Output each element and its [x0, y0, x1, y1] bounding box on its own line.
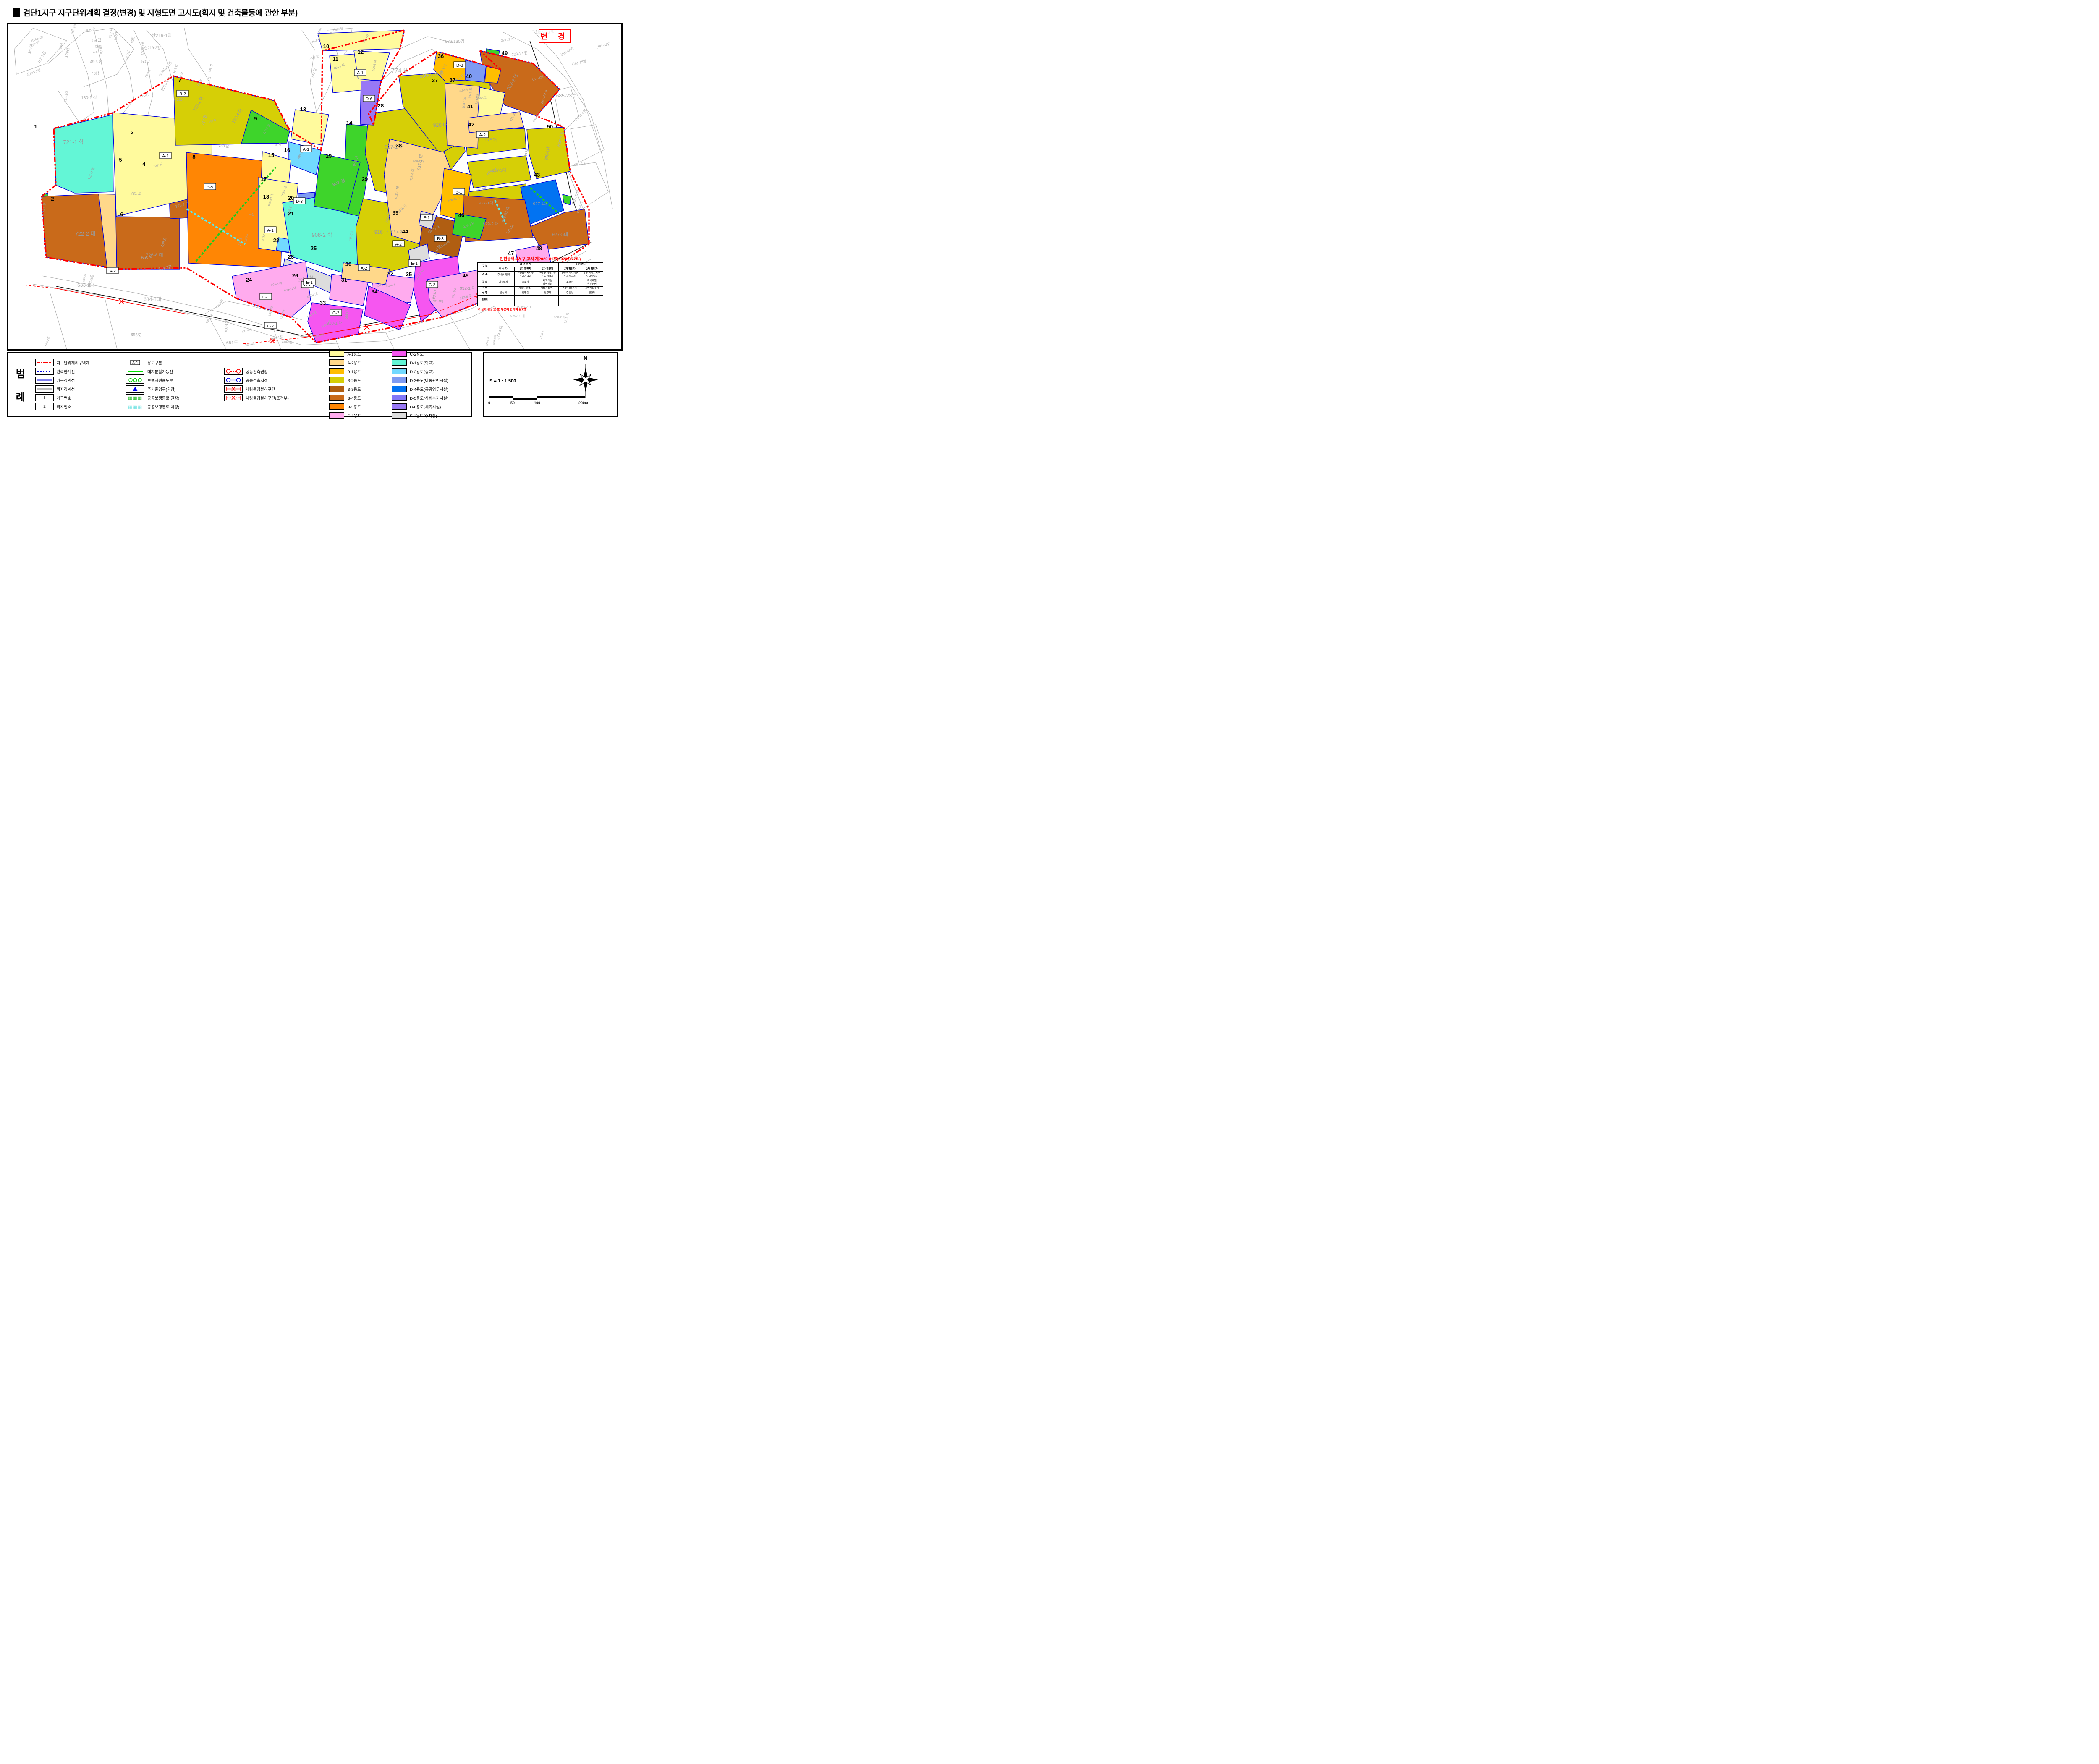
block-number: 24 [246, 277, 252, 283]
outside-parcel-label: 128대 [59, 43, 63, 51]
legend-item-usecode: A-1용도구분 [126, 359, 224, 366]
use-code-tag: B-3 [437, 237, 444, 241]
legend-label: 공공보행통로(권장) [147, 395, 179, 401]
block-number: 10 [323, 43, 329, 50]
legend-label: 획지번호 [57, 404, 71, 410]
block-number: 26 [292, 272, 298, 279]
block-number: 12 [358, 49, 364, 55]
block-number: 20 [288, 195, 294, 201]
road-label: 1049도 [523, 147, 529, 158]
cadastral-line [58, 28, 94, 123]
use-code-tag: E-1 [411, 262, 418, 266]
outside-parcel-label: 745-5 임 [310, 38, 321, 45]
use-code-tag: B-5 [207, 185, 213, 190]
parcel-label: 932-1 대 [460, 286, 476, 291]
zone-polygon-D1 [54, 115, 113, 193]
use-code-tag: D-3 [296, 199, 303, 204]
road-label: 651도 [226, 340, 238, 345]
block-number: 29 [362, 176, 368, 182]
legend-label: 용도구분 [147, 360, 162, 366]
use-code-tag: A-2 [479, 133, 486, 138]
legend-item-D3: D-3용도(아동관련시설) [392, 377, 471, 384]
cadastral-line [449, 314, 470, 349]
block-number: 22 [273, 237, 279, 243]
block-number: 44 [402, 228, 408, 235]
legend-col-zones1: A-1용도A-2용도B-1용도B-2용도B-3용도B-4용도B-5용도C-1용도 [329, 350, 392, 419]
zone-polygon-A2 [445, 83, 480, 148]
svg-text:1: 1 [43, 396, 46, 400]
outside-parcel-label: 130-1 장 [81, 95, 97, 100]
block-number: 46 [458, 212, 464, 218]
scale-panel: N S = 1 : 1,500 0 50 100 [483, 352, 618, 417]
outside-parcel-label: 1119 도 [563, 312, 570, 324]
legend-label: 대지분할가능선 [147, 369, 173, 374]
cadastral-line [105, 297, 117, 349]
block-number: 21 [288, 210, 294, 217]
zone-polygon-GRN [563, 194, 571, 205]
outside-parcel-label: 52전 [130, 36, 136, 44]
legend-symbol-jointdes-icon [224, 377, 243, 384]
block-number: 43 [534, 172, 540, 178]
legend-swatch-D3 [392, 377, 407, 383]
outside-parcel-label: 산219-1임 [152, 33, 172, 38]
legend-symbol-usecode-icon: A-1 [126, 359, 144, 366]
legend-label: 공동건축지정 [246, 377, 267, 383]
legend-label: 지구단위계획구역계 [57, 360, 90, 366]
legend-item-pedroad: 보행자전용도로 [126, 377, 224, 384]
outside-parcel-label: 산223임 [174, 97, 186, 102]
block-number: 27 [432, 77, 438, 84]
outside-parcel-label: 223-17 임 [511, 50, 528, 57]
legend-label: D-6용도(체육시설) [410, 404, 441, 410]
scale-bar: 0 50 100 200m [489, 396, 585, 406]
legend-item-jointdes: 공동건축지정 [224, 377, 329, 384]
legend-label: B-2용도 [347, 377, 361, 383]
use-code-tag: B-1 [455, 190, 462, 195]
use-code-tag: A-2 [109, 269, 116, 274]
legend-swatch-B4 [329, 395, 344, 401]
legend-label: 가구번호 [57, 395, 71, 401]
outside-parcel-label: 50-4임 [144, 69, 152, 78]
legend-label: 획지경계선 [57, 386, 75, 392]
block-number: 13 [300, 106, 306, 113]
outside-parcel-label: 979-3 대 [492, 335, 497, 345]
legend-label: 차량출입불허구간 [246, 386, 275, 392]
parcel-label: 931-1대 [433, 300, 443, 303]
legend-item-noveh: 차량출입불허구간 [224, 385, 329, 393]
legend-label: C-2용도 [410, 351, 424, 357]
outside-parcel-label: 산101-1임 [574, 108, 587, 122]
legend-swatch-B5 [329, 403, 344, 410]
block-number: 5 [119, 157, 122, 163]
legend-item-novehcond: 차량출입불허구간(조건부) [224, 394, 329, 401]
page: 검단1지구 지구단위계획 결정(변경) 및 지형도면 고시도(획지 및 건축물등… [0, 0, 624, 444]
legend-swatch-D4 [392, 386, 407, 392]
legend-col-lines2: A-1용도구분대지분할가능선보행자전용도로주차출입구(권장)▦▦▦공공보행통로(… [126, 359, 224, 410]
legend-item-lotnum: ①획지번호 [35, 403, 126, 410]
notice-footnote: ※ 금회 결정(변경) 부분에 한하여 유효함. [477, 307, 603, 311]
outside-parcel-label: 979-11 대 [510, 314, 525, 318]
legend-swatch-A2 [329, 359, 344, 366]
block-number: 25 [311, 245, 317, 251]
use-code-tag: A-2 [395, 242, 402, 247]
legend-heading: 범 례 [8, 361, 34, 408]
cadastral-line [50, 293, 67, 349]
legend-col-zones2: C-2용도D-1용도(학교)D-2용도(종교)D-3용도(아동관련시설)D-4용… [392, 350, 471, 419]
svg-text:▦▦▦: ▦▦▦ [128, 396, 142, 400]
legend-symbol-lotline-icon [35, 385, 54, 393]
approval-table: 구 분입 안 권 자결 정 권 자작 성 자1차 확인자2차 확인자1차 확인자… [477, 262, 603, 306]
outside-parcel-label: 산220-1임 [140, 42, 145, 55]
legend-item-splitline: 대지분할가능선 [126, 368, 224, 375]
outside-parcel-label: 55-6 전 [84, 26, 96, 33]
use-code-tag: E-1 [423, 216, 430, 220]
outside-parcel-label: 38-2 잡 [172, 64, 178, 74]
legend-item-pubwalk1: ▦▦▦공공보행통로(권장) [126, 394, 224, 401]
legend-label: A-1용도 [347, 351, 361, 357]
outside-parcel-label: 50답 [141, 59, 150, 64]
cadastral-line [386, 332, 394, 349]
outside-parcel-label: 49-1답 [93, 50, 103, 54]
use-code-tag: C-2 [267, 324, 274, 329]
cadastral-line [48, 28, 134, 87]
legend: 범 례 지구단위계획구역계건축한계선가구경계선획지경계선1가구번호①획지번호 A… [7, 352, 472, 417]
x-mark [364, 325, 369, 330]
legend-item-blocknum: 1가구번호 [35, 394, 126, 401]
legend-symbol-bldgline-icon [35, 368, 54, 375]
outside-parcel-label: 685-2 임 [574, 161, 587, 167]
legend-item-D2: D-2용도(종교) [392, 368, 471, 375]
legend-label: D-3용도(아동관련시설) [410, 377, 448, 383]
legend-item-B5: B-5용도 [329, 403, 392, 410]
outside-parcel-label: 산91-14임 [560, 46, 574, 57]
legend-col-lines1: 지구단위계획구역계건축한계선가구경계선획지경계선1가구번호①획지번호 [35, 359, 126, 410]
legend-label: D-4용도(공공업무시설) [410, 386, 448, 392]
legend-label: B-1용도 [347, 369, 361, 374]
outside-parcel-label: 980-7 대 [554, 316, 565, 319]
legend-item-A1: A-1용도 [329, 350, 392, 357]
legend-label: B-3용도 [347, 386, 361, 392]
legend-item-B4: B-4용도 [329, 394, 392, 401]
legend-item-pubwalk2: ▦▦▦공공보행통로(지정) [126, 403, 224, 410]
cadastral-line [14, 28, 67, 74]
legend-label: 보행자전용도로 [147, 377, 173, 383]
legend-item-C1: C-1용도 [329, 412, 392, 419]
outside-parcel-label: 649-2종 [44, 336, 51, 347]
block-number: 18 [263, 194, 269, 200]
use-code-tag: A-2 [361, 266, 367, 271]
block-number: 39 [393, 209, 398, 216]
legend-swatch-B3 [329, 386, 344, 392]
legend-item-C2: C-2용도 [392, 350, 471, 357]
legend-item-D5: D-5용도(사회복지시설) [392, 394, 471, 401]
use-code-tag: C-1 [262, 295, 270, 300]
block-number: 9 [254, 115, 257, 122]
block-number: 1 [34, 123, 37, 130]
legend-label: B-4용도 [347, 395, 361, 401]
block-number: 11 [332, 56, 338, 62]
notice-title: - 인천광역시서구 고시 제2020-81호(2020.05.25.) - [477, 256, 603, 262]
title-bar: 검단1지구 지구단위계획 결정(변경) 및 지형도면 고시도(획지 및 건축물등… [13, 7, 298, 18]
outside-parcel-label: 774 임 [391, 67, 409, 74]
no-vehicle-access-line [56, 288, 188, 314]
legend-item-E1: E-1용도(주차장) [392, 412, 471, 419]
legend-item-B1: B-1용도 [329, 368, 392, 375]
bottom-row: 범 례 지구단위계획구역계건축한계선가구경계선획지경계선1가구번호①획지번호 A… [7, 352, 618, 417]
legend-label: D-2용도(종교) [410, 369, 434, 374]
legend-col-lines3: 공동건축권장공동건축지정차량출입불허구간차량출입불허구간(조건부) [224, 368, 329, 401]
legend-heading-char2: 례 [16, 389, 25, 403]
svg-text:▦▦▦: ▦▦▦ [128, 405, 142, 409]
legend-item-A2: A-2용도 [329, 359, 392, 366]
use-code-tag: D-6 [366, 97, 373, 102]
outside-parcel-label: 634-1대 [144, 296, 161, 302]
outside-parcel-label: 48답 [92, 71, 99, 76]
block-number: 16 [284, 147, 290, 153]
outside-parcel-label: 685-23수 [556, 93, 576, 99]
legend-label: E-1용도(주차장) [410, 413, 437, 419]
map-frame: 산219-1임산219-2임54답53답49-1답49-3 전48답50답50-… [7, 23, 623, 351]
block-number: 8 [192, 154, 195, 160]
block-number: 15 [268, 152, 274, 158]
block-number: 31 [341, 277, 347, 283]
block-number: 23 [288, 254, 294, 260]
notice-panel: - 인천광역시서구 고시 제2020-81호(2020.05.25.) - 구 … [477, 256, 603, 311]
use-code-tag: C-2 [429, 283, 436, 288]
block-number: 34 [372, 288, 378, 295]
parcel-label: 920 대 [433, 122, 448, 128]
block-number: 14 [346, 120, 353, 126]
parcel-label: 908-2 학 [312, 232, 332, 238]
north-label: N [571, 355, 600, 361]
legend-item-bldgline: 건축한계선 [35, 368, 126, 375]
legend-symbol-blocknum-icon: 1 [35, 394, 54, 401]
legend-item-B2: B-2용도 [329, 377, 392, 384]
outside-parcel-label: 638-6공 [282, 341, 293, 344]
block-number: 49 [502, 50, 508, 56]
legend-item-D4: D-4용도(공공업무시설) [392, 385, 471, 393]
use-code-tag: C-2 [332, 311, 340, 316]
scale-ratio: S = 1 : 1,500 [489, 379, 516, 384]
north-indicator: N [571, 355, 600, 402]
outside-parcel-label: 686-130임 [445, 39, 464, 44]
use-code-tag: B-2 [179, 92, 186, 97]
outside-parcel-label: 산220임 [332, 26, 343, 32]
legend-item-jointrec: 공동건축권장 [224, 368, 329, 375]
use-code-tag: A-1 [303, 147, 309, 152]
block-number: 28 [378, 102, 384, 109]
block-number: 32 [387, 270, 393, 277]
block-number: 41 [467, 103, 473, 110]
use-code-tag: A-1 [357, 71, 364, 76]
parcel-label: 927-4대 [533, 202, 548, 207]
scale-ticks: 0 50 100 200m [489, 400, 585, 406]
legend-label: 공동건축권장 [246, 369, 267, 374]
parcel-label: 722-2 대 [75, 230, 96, 237]
legend-label: 건축한계선 [57, 369, 75, 374]
block-number: 33 [320, 300, 326, 306]
parcel-label: 916 대 [374, 229, 389, 235]
outside-parcel-label: 748 잡 [208, 63, 214, 73]
parcel-label: 721-1 학 [63, 139, 84, 145]
legend-symbol-lotnum-icon: ① [35, 403, 54, 410]
use-code-tag: E-1 [306, 280, 313, 285]
legend-swatch-C2 [392, 351, 407, 357]
legend-label: B-5용도 [347, 404, 361, 410]
outside-parcel-label: 979-4 대 [496, 325, 503, 340]
legend-item-blockline: 가구경계선 [35, 377, 126, 384]
block-number: 17 [261, 176, 267, 182]
legend-item-D6: D-6용도(체육시설) [392, 403, 471, 410]
parcel-label: 925대 [485, 137, 497, 143]
legend-item-boundary: 지구단위계획구역계 [35, 359, 126, 366]
legend-symbol-pubwalk2-icon: ▦▦▦ [126, 403, 144, 410]
legend-symbol-boundary-icon [35, 359, 54, 366]
legend-swatch-C1 [329, 412, 344, 419]
block-number: 40 [466, 73, 472, 79]
outside-parcel-label: 50-2임 [159, 68, 166, 77]
legend-symbol-novehcond-icon [224, 394, 243, 401]
block-number: 35 [406, 271, 412, 277]
parcel-label: 927-1대 [479, 201, 494, 206]
block-number: 19 [326, 153, 332, 159]
road-label: 656도 [131, 332, 141, 338]
legend-item-D1: D-1용도(학교) [392, 359, 471, 366]
block-number: 4 [142, 161, 146, 167]
outside-parcel-label: 223-17 임 [501, 37, 514, 42]
outside-parcel-label: 635-2대 [215, 299, 224, 309]
outside-parcel-label: 49-3 전 [90, 60, 102, 64]
outside-parcel-label: 산91-15임 [571, 59, 587, 67]
legend-swatch-D2 [392, 368, 407, 374]
use-code-tag: A-1 [267, 228, 274, 233]
legend-swatch-B1 [329, 368, 344, 374]
legend-symbol-blockline-icon [35, 377, 54, 384]
legend-symbol-splitline-icon [126, 368, 144, 375]
outside-parcel-label: 637-1대 [224, 320, 229, 332]
legend-swatch-A1 [329, 351, 344, 357]
outside-parcel-label: 129-1대 [63, 90, 69, 102]
outside-parcel-label: 산219-2임 [144, 45, 161, 50]
legend-label: 가구경계선 [57, 377, 75, 383]
outside-parcel-label: 1118 도 [539, 329, 545, 340]
road-label: 731 도 [131, 191, 141, 196]
legend-item-lotline: 획지경계선 [35, 385, 126, 393]
parcel-label: 910-1 대 [327, 321, 343, 326]
legend-swatch-D6 [392, 403, 407, 410]
legend-symbol-jointrec-icon [224, 368, 243, 375]
legend-label: 차량출입불허구간(조건부) [246, 395, 288, 401]
block-number: 6 [120, 211, 123, 217]
parcel-label: 915-4 대 [390, 230, 403, 234]
block-number: 50 [547, 123, 553, 130]
outside-parcel-label: 155-7장 [37, 50, 47, 64]
outside-parcel-label: 633-3도 [82, 272, 87, 282]
legend-swatch-E1 [392, 412, 407, 419]
svg-text:A-1: A-1 [132, 361, 138, 365]
change-stamp: 변 경 [540, 32, 569, 41]
block-number: 3 [131, 129, 133, 136]
legend-label: D-1용도(학교) [410, 360, 434, 366]
use-code-tag: D-3 [456, 63, 463, 68]
legend-label: 주차출입구(권장) [147, 386, 176, 392]
block-number: 48 [536, 245, 542, 251]
outside-parcel-label: 54답 [92, 38, 102, 43]
block-number: 7 [178, 77, 181, 84]
outside-parcel-label: 747 잡 [310, 68, 317, 79]
road-label: 곡전 [249, 212, 254, 216]
outside-parcel-label: 129전 [64, 47, 70, 58]
cadastral-line [113, 32, 134, 120]
legend-item-parkentry: 주차출입구(권장) [126, 385, 224, 393]
cadastral-line [209, 318, 226, 349]
block-number: 30 [345, 261, 351, 267]
outside-parcel-label: 52-3전 [125, 50, 131, 60]
legend-symbol-pedroad-icon [126, 377, 144, 384]
legend-label: D-5용도(사회복지시설) [410, 395, 448, 401]
outside-parcel-label: 산91-35임 [596, 42, 611, 50]
legend-swatch-D1 [392, 359, 407, 366]
block-number: 37 [450, 77, 455, 83]
block-number: 45 [463, 272, 468, 279]
page-title: 검단1지구 지구단위계획 결정(변경) 및 지형도면 고시도(획지 및 건축물등… [23, 7, 298, 18]
block-number: 2 [51, 196, 54, 202]
use-code-tag: A-1 [162, 154, 169, 159]
legend-label: A-2용도 [347, 360, 361, 366]
title-square-icon [13, 8, 20, 17]
outside-parcel-label: 산193-2임 [26, 68, 41, 76]
block-number: 36 [438, 53, 444, 59]
outside-parcel-label: 637-4대 [242, 328, 253, 334]
legend-item-B3: B-3용도 [329, 385, 392, 393]
legend-swatch-D5 [392, 395, 407, 401]
block-number: 38 [396, 142, 402, 149]
outside-parcel-label: 979-2 대 [485, 337, 490, 347]
legend-symbol-noveh-icon [224, 385, 243, 393]
legend-label: 공공보행통로(지정) [147, 404, 179, 410]
legend-label: C-1용도 [347, 413, 361, 419]
parcel-label: 928-1 대 [413, 160, 424, 163]
block-number: 42 [468, 121, 474, 128]
zone-polygon-B4 [115, 217, 180, 269]
zone-polygon-B4 [42, 194, 107, 267]
outside-parcel-label: 53답 [95, 44, 102, 49]
road-label: 금 마 [275, 142, 282, 146]
legend-heading-char1: 범 [16, 366, 25, 380]
svg-text:①: ① [42, 405, 46, 410]
compass-rose-icon [572, 361, 599, 400]
outside-parcel-label: 55-5대 [114, 31, 118, 41]
parcel-label: 929-2 대 [483, 222, 499, 227]
outside-parcel-label: 50-6임 [139, 93, 149, 98]
legend-symbol-pubwalk1-icon: ▦▦▦ [126, 394, 144, 401]
parcel-label: 927-5대 [552, 232, 568, 237]
zone-polygon-A1 [291, 110, 329, 145]
legend-swatch-B2 [329, 377, 344, 383]
legend-symbol-parkentry-icon [126, 385, 144, 393]
outside-parcel-label: 산226-1 임 [160, 76, 171, 92]
